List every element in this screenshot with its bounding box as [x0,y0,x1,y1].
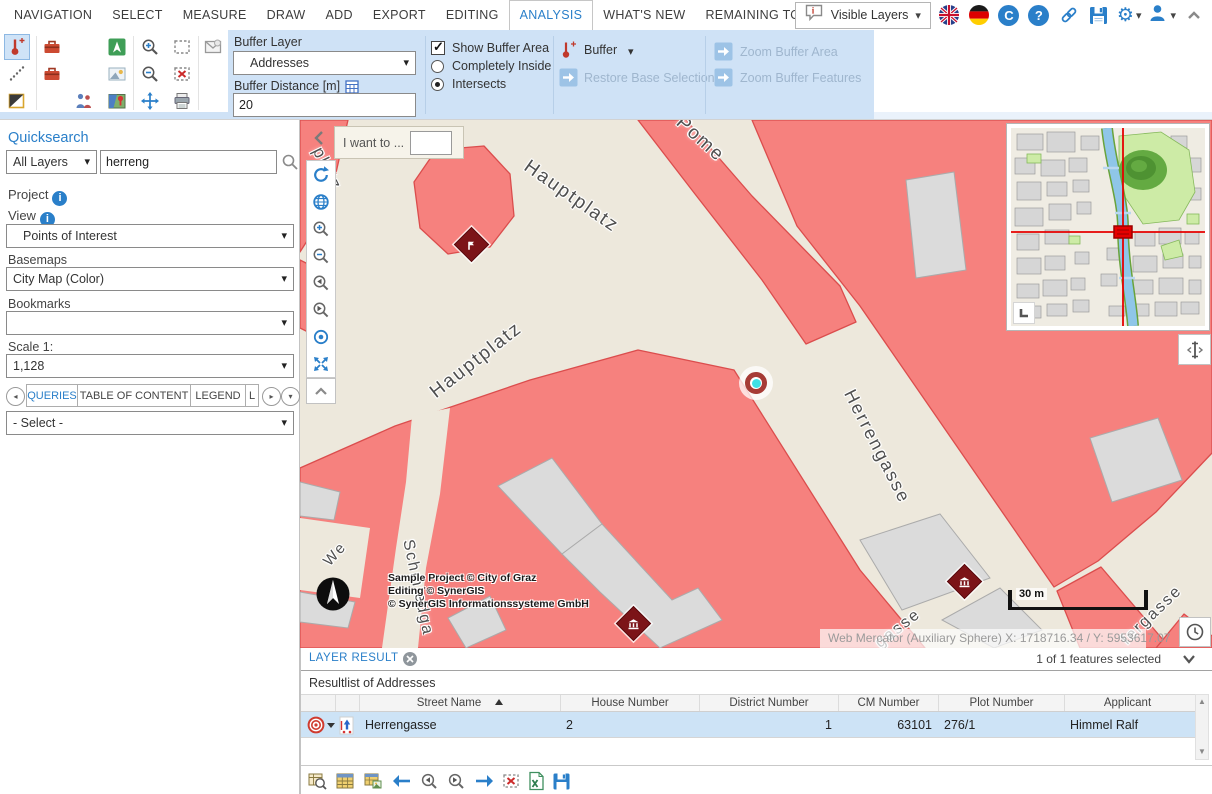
scale-bar: 30 m [1008,590,1148,610]
tab-legend[interactable]: LEGEND [190,384,246,407]
show-buffer-area-checkbox[interactable] [431,41,445,55]
header-cm-number[interactable]: CM Number [838,695,938,711]
collapse-ribbon-icon[interactable] [1182,3,1206,27]
header-house-number[interactable]: House Number [560,695,699,711]
cell-plot-number: 276/1 [944,712,1064,738]
language-german-icon[interactable] [967,3,991,27]
toolbox-icon[interactable] [40,35,64,59]
query-select[interactable]: - Select - [6,411,294,435]
header-applicant[interactable]: Applicant [1064,695,1190,711]
full-extent-globe-icon[interactable] [307,188,335,215]
i-want-to-label: I want to ... [343,136,404,150]
search-in-table-icon[interactable] [306,770,328,792]
webgis-app-window: NAVIGATION SELECT MEASURE DRAW ADD EXPOR… [0,0,1212,794]
result-tab-row: LAYER RESULT 1 of 1 features selected [301,648,1212,671]
completely-inside-label: Completely Inside [452,59,551,73]
tabs-scroll-right-icon[interactable]: ▸ [262,387,281,406]
ribbon-toolbar: Buffer Layer Addresses Buffer Distance [… [0,30,1212,120]
scale-select[interactable]: 1,128 [6,354,294,378]
intersects-radio[interactable] [431,78,444,91]
tooltip-bubble-icon: i [805,4,824,26]
share-link-icon[interactable] [1057,3,1081,27]
visible-layers-label: Visible Layers [831,8,909,22]
restore-base-selection-icon [559,68,578,92]
map-viewport[interactable]: platz Hauptplatz Pome Hauptplatz Herreng… [300,120,1212,648]
basemap-select[interactable]: City Map (Color) [6,267,294,291]
result-row-selected[interactable]: Herrengasse 2 1 63101 276/1 Himmel Ralf [301,712,1197,738]
gear-icon [1117,4,1134,27]
select-rectangle-icon[interactable] [170,35,194,59]
clear-result-selection-icon[interactable] [500,770,522,792]
zoom-in-map-icon[interactable] [307,215,335,242]
i-want-to-box: I want to ... [334,126,464,159]
buffer-options-caret[interactable] [628,42,634,60]
restore-base-selection-button[interactable]: Restore Base Selection [584,71,715,85]
swipe-compare-button[interactable] [1178,334,1211,365]
mernstab-people-icon[interactable] [72,89,96,113]
header-plot-number[interactable]: Plot Number [938,695,1064,711]
search-icon[interactable] [281,153,299,176]
result-footer-toolbar [301,765,1212,794]
export-table-icon[interactable] [362,770,384,792]
scroll-down-icon[interactable]: ▼ [1196,745,1208,757]
row-actions-caret[interactable] [327,723,335,728]
chevron-down-icon [915,6,921,24]
fit-extent-icon[interactable] [307,350,335,377]
tab-overflow-clipped[interactable]: L [245,384,259,407]
i-want-to-input[interactable] [410,131,452,155]
user-icon [1147,2,1168,28]
zoom-out-map-icon[interactable] [307,242,335,269]
tab-queries[interactable]: QUERIES [26,384,78,407]
analysis-buffer-panel: Buffer Layer Addresses Buffer Distance [… [228,30,874,119]
buffer-button[interactable]: Buffer [584,43,617,57]
scale-label: Scale 1: [8,340,53,354]
chevron-down-icon [1136,6,1142,24]
navigate-tool-icon[interactable] [105,35,129,59]
zoom-next-icon[interactable] [445,770,467,792]
export-excel-icon[interactable] [525,770,547,792]
menu-analysis-active[interactable]: ANALYSIS [509,0,594,30]
scale-bar-label: 30 m [1016,588,1047,600]
selected-feature-center [752,379,761,388]
cell-applicant: Himmel Ralf [1070,712,1190,738]
buffer-button-icon [560,40,578,65]
menu-whats-new[interactable]: WHAT'S NEW [593,1,695,29]
header-tools-col [301,695,335,711]
chevron-down-icon [1170,6,1176,24]
toolbar-collapse-icon[interactable] [306,378,336,404]
visible-layers-dropdown[interactable]: i Visible Layers [795,2,931,29]
user-menu[interactable] [1147,2,1176,28]
screenshot-tool-icon[interactable] [105,62,129,86]
show-table-icon[interactable] [334,770,356,792]
zoom-in-tool-icon[interactable] [138,35,162,59]
layer-result-panel: LAYER RESULT 1 of 1 features selected Re… [300,648,1212,794]
scroll-up-icon[interactable]: ▲ [1196,695,1208,707]
zoom-buffer-area-button[interactable]: Zoom Buffer Area [740,45,838,59]
project-info-icon[interactable] [52,191,67,206]
tabs-list-icon[interactable]: ▾ [281,387,300,406]
collapse-panel-icon[interactable] [1181,652,1197,666]
sidebar: Quicksearch All Layers Project View Poin… [0,120,300,794]
completely-inside-radio[interactable] [431,60,444,73]
header-district-number[interactable]: District Number [699,695,838,711]
menubar: NAVIGATION SELECT MEASURE DRAW ADD EXPOR… [0,0,1212,30]
result-table-header: Street Name House Number District Number… [301,694,1197,712]
zoom-out-tool-icon[interactable] [138,62,162,86]
zoom-buffer-features-button[interactable]: Zoom Buffer Features [740,71,861,85]
time-slider-button[interactable] [1179,617,1211,647]
buffer-distance-label: Buffer Distance [m] [234,79,340,93]
row-locate-icon[interactable] [339,716,354,740]
menu-add[interactable]: ADD [316,1,363,29]
bookmarks-label: Bookmarks [8,297,71,311]
basemaps-label: Basemaps [8,253,67,267]
menu-draw[interactable]: DRAW [257,1,316,29]
header-tools-col2 [335,695,359,711]
project-label: Project [8,187,67,206]
previous-extent-icon[interactable] [307,269,335,296]
swipe-map-icon[interactable] [5,89,29,113]
menu-select[interactable]: SELECT [102,1,172,29]
refresh-map-icon[interactable] [307,161,335,188]
collapse-sidebar-icon[interactable] [308,128,330,148]
menu-measure[interactable]: MEASURE [173,1,257,29]
tabs-scroll-left-icon[interactable]: ◂ [6,387,25,406]
previous-record-icon[interactable] [391,770,413,792]
map-attribution: Sample Project © City of Graz Editing © … [388,572,589,611]
tab-table-of-content[interactable]: TABLE OF CONTENT [77,384,191,407]
toolbox2-icon[interactable] [40,62,64,86]
compass-icon [315,576,351,617]
next-extent-icon[interactable] [307,296,335,323]
selection-status: 1 of 1 features selected [1036,652,1161,666]
quicksearch-title[interactable]: Quicksearch [8,130,89,146]
center-map-icon[interactable] [307,323,335,350]
quicksearch-input[interactable] [100,150,277,174]
main-menu: NAVIGATION SELECT MEASURE DRAW ADD EXPOR… [4,0,836,30]
zoom-buffer-features-icon [714,68,733,92]
menubar-right-controls: i Visible Layers [795,2,1206,28]
map-toolbar [306,160,336,378]
buffer-layer-select[interactable]: Addresses [233,51,416,75]
zoom-previous-icon[interactable] [418,770,440,792]
header-street-name[interactable]: Street Name [359,695,560,711]
show-buffer-area-label: Show Buffer Area [452,41,549,55]
result-table-scrollbar[interactable]: ▲ ▼ [1195,694,1209,760]
save-session-icon[interactable] [1087,3,1111,27]
buffer-tool-icon[interactable] [5,35,29,59]
print-tool-icon[interactable] [170,89,194,113]
save-result-icon[interactable] [550,770,572,792]
buffer-layer-label: Buffer Layer [234,35,302,49]
cadastre-tool-icon[interactable] [997,3,1021,27]
settings-menu[interactable] [1117,4,1142,27]
search-scope-select[interactable]: All Layers [6,150,97,174]
clear-selection-tool-icon[interactable] [170,62,194,86]
menu-export[interactable]: EXPORT [363,1,436,29]
resultlist-title: Resultlist of Addresses [309,676,435,690]
next-record-icon[interactable] [473,770,495,792]
help-icon[interactable] [1027,3,1051,27]
menu-navigation[interactable]: NAVIGATION [4,1,102,29]
close-result-tab-icon[interactable] [403,652,417,666]
intersects-label: Intersects [452,77,506,91]
menu-editing[interactable]: EDITING [436,1,509,29]
cell-district-number: 1 [699,712,832,738]
measure-line-icon[interactable] [5,62,29,86]
pan-tool-icon[interactable] [138,89,162,113]
overview-collapse-icon[interactable] [1013,302,1035,324]
sort-ascending-icon [495,699,503,705]
coordinate-readout: Web Mercator (Auxiliary Sphere) X: 17187… [820,629,1146,648]
buffer-distance-input[interactable] [233,93,416,117]
zoom-buffer-area-icon [714,42,733,66]
map-with-pin-icon[interactable] [105,89,129,113]
row-target-icon[interactable] [307,716,325,739]
view-select[interactable]: Points of Interest [6,224,294,248]
cell-house-number: 2 [566,712,699,738]
bookmarks-select[interactable] [6,311,294,335]
tab-layer-result[interactable]: LAYER RESULT [309,652,398,664]
overview-map[interactable] [1006,123,1210,331]
cell-cm-number: 63101 [838,712,932,738]
overview-map-canvas [1011,128,1205,326]
cell-street-name: Herrengasse [365,712,560,738]
language-english-icon[interactable] [937,3,961,27]
send-map-email-icon[interactable] [201,35,225,59]
